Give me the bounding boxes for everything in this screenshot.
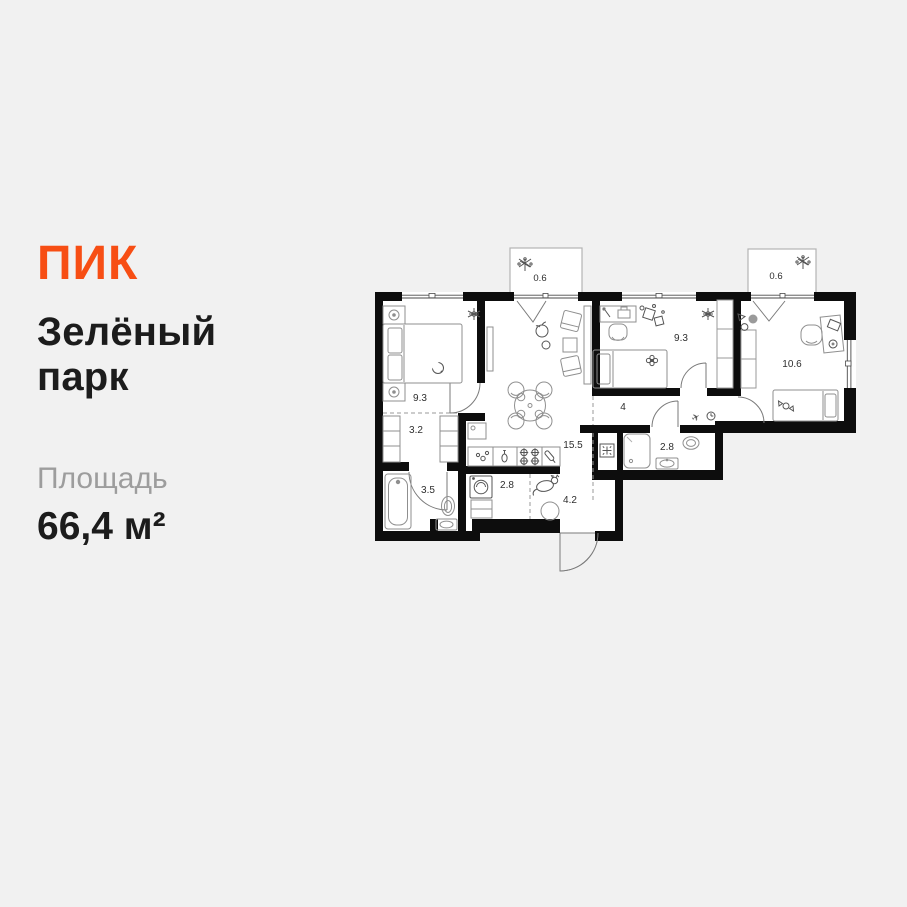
floor-plan-svg: 0.6 0.6 [370, 240, 870, 580]
entrance-door-swing [560, 533, 598, 571]
room-area-label: 0.6 [769, 271, 782, 282]
room-area-label: 4.2 [563, 495, 577, 506]
area-value: 66,4 м² [37, 505, 357, 549]
wardrobe-icon [717, 300, 733, 388]
window-bedroom-3 [844, 340, 856, 388]
room-area-label: 9.3 [413, 393, 427, 404]
listing-card: ПИК Зелёный парк Площадь 66,4 м² 0.6 0.6 [0, 0, 907, 907]
floor-plan: 0.6 0.6 [370, 240, 870, 580]
area-label: Площадь [37, 462, 357, 496]
balcony-1: 0.6 [510, 248, 582, 294]
info-panel: ПИК Зелёный парк Площадь 66,4 м² [37, 240, 357, 549]
room-area-label: 3.5 [421, 485, 435, 496]
project-title-line2: парк [37, 355, 129, 399]
room-area-label: 0.6 [533, 273, 546, 284]
pik-logo: ПИК [37, 240, 357, 288]
project-title: Зелёный парк [37, 310, 357, 400]
window-balcony-2-door [751, 292, 814, 301]
room-area-label: 10.6 [782, 359, 802, 370]
balcony-2: 0.6 [748, 249, 816, 294]
window-bedroom-2 [622, 292, 696, 301]
room-area-label: 2.8 [660, 442, 674, 453]
room-area-label: 2.8 [500, 480, 514, 491]
room-area-label: 9.3 [674, 333, 688, 344]
wardrobe-icon [741, 330, 756, 388]
window-balcony-1-door [514, 292, 578, 301]
project-title-line1: Зелёный [37, 310, 216, 354]
room-area-label: 3.2 [409, 425, 423, 436]
room-area-label: 4 [620, 402, 626, 413]
window-bedroom-1 [402, 292, 463, 301]
room-area-label: 15.5 [563, 440, 583, 451]
